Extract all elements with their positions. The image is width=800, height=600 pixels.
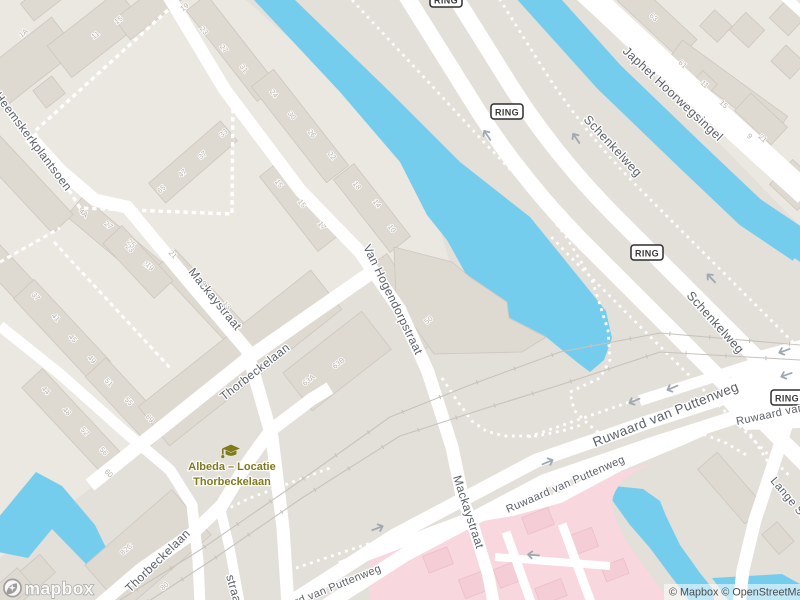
svg-text:RING: RING bbox=[775, 393, 799, 403]
svg-text:mapbox: mapbox bbox=[25, 579, 95, 599]
svg-text:Thorbeckelaan: Thorbeckelaan bbox=[193, 476, 271, 488]
svg-text:RING: RING bbox=[434, 0, 458, 5]
svg-text:RING: RING bbox=[495, 107, 519, 117]
svg-text:RING: RING bbox=[635, 248, 659, 258]
svg-text:© Mapbox © OpenStreetMap: © Mapbox © OpenStreetMap bbox=[669, 587, 800, 599]
svg-text:Albeda – Locatie: Albeda – Locatie bbox=[188, 461, 275, 473]
